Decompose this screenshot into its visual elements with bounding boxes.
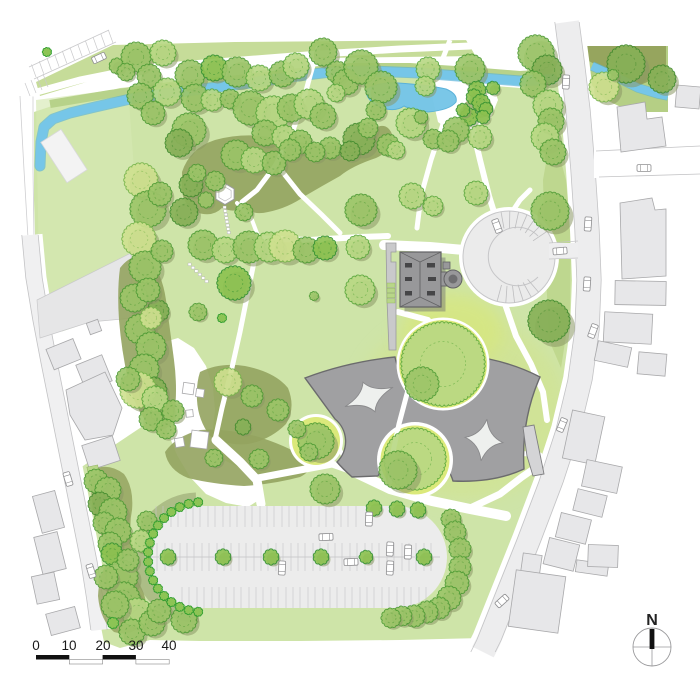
svg-text:40: 40	[161, 638, 176, 653]
svg-text:20: 20	[95, 638, 110, 653]
svg-text:0: 0	[32, 638, 40, 653]
svg-text:10: 10	[61, 638, 76, 653]
svg-text:30: 30	[128, 638, 143, 653]
svg-text:N: N	[646, 612, 658, 629]
